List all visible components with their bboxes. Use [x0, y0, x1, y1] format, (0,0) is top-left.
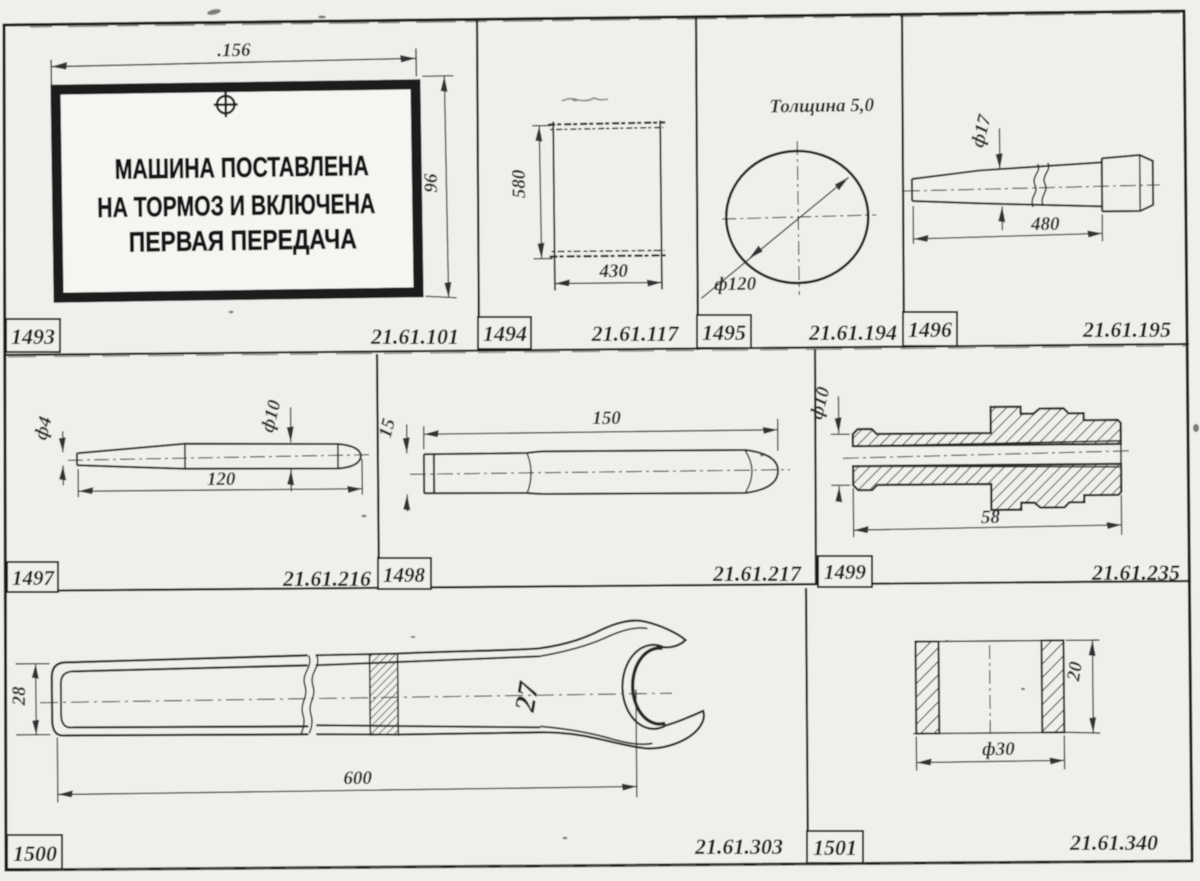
svg-text:600: 600 — [343, 768, 372, 789]
svg-text:1495: 1495 — [702, 320, 746, 345]
svg-text:1494: 1494 — [483, 321, 527, 346]
svg-text:21.61.117: 21.61.117 — [591, 321, 680, 346]
svg-text:150: 150 — [592, 408, 621, 429]
svg-text:1500: 1500 — [13, 841, 57, 866]
svg-text:1497: 1497 — [12, 566, 56, 590]
svg-text:ф120: ф120 — [714, 274, 757, 296]
svg-text:1499: 1499 — [824, 560, 867, 584]
svg-text:21.61.303: 21.61.303 — [694, 834, 783, 859]
svg-text:ф30: ф30 — [982, 739, 1015, 760]
svg-text:1493: 1493 — [11, 324, 55, 349]
svg-text:НА ТОРМОЗ И ВКЛЮЧЕНА: НА ТОРМОЗ И ВКЛЮЧЕНА — [97, 188, 375, 223]
svg-text:21.61.101: 21.61.101 — [370, 324, 459, 349]
svg-text:430: 430 — [598, 261, 628, 282]
svg-text:21.61.235: 21.61.235 — [1091, 560, 1180, 585]
svg-text:28: 28 — [9, 686, 30, 707]
svg-text:.156: .156 — [217, 40, 251, 61]
svg-text:1498: 1498 — [383, 563, 426, 587]
svg-text:ПЕРВАЯ ПЕРЕДАЧА: ПЕРВАЯ ПЕРЕДАЧА — [129, 223, 357, 257]
svg-text:96: 96 — [421, 173, 442, 193]
svg-text:МАШИНА ПОСТАВЛЕНА: МАШИНА ПОСТАВЛЕНА — [114, 150, 368, 185]
svg-text:Толщина 5,0: Толщина 5,0 — [769, 95, 874, 117]
svg-text:21.61.217: 21.61.217 — [712, 561, 802, 586]
svg-text:120: 120 — [207, 469, 236, 490]
svg-text:580: 580 — [509, 169, 530, 198]
svg-text:20: 20 — [1063, 660, 1087, 684]
svg-text:1501: 1501 — [813, 835, 857, 860]
svg-text:21.61.195: 21.61.195 — [1082, 317, 1171, 342]
svg-text:21.61.216: 21.61.216 — [282, 566, 371, 591]
svg-text:21.61.340: 21.61.340 — [1069, 830, 1158, 855]
svg-text:480: 480 — [1030, 214, 1060, 235]
svg-text:58: 58 — [981, 507, 1001, 528]
svg-text:1496: 1496 — [908, 317, 952, 342]
svg-text:21.61.194: 21.61.194 — [808, 320, 897, 345]
